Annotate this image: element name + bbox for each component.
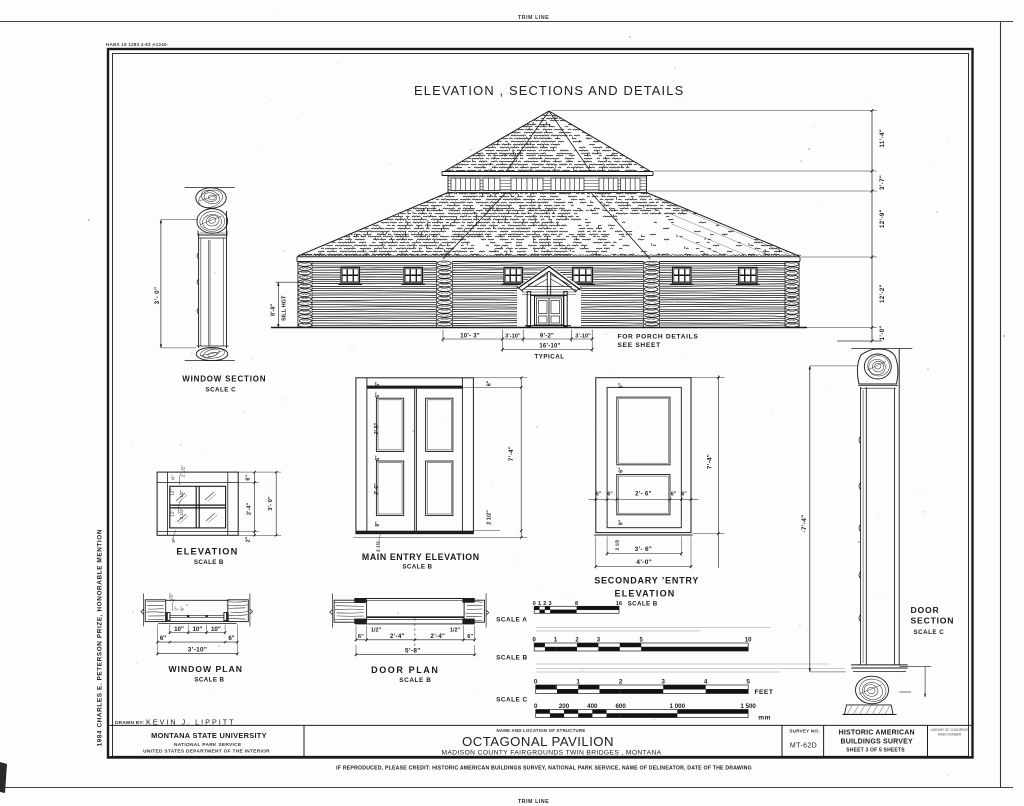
svg-text:6": 6" — [596, 492, 602, 498]
svg-text:FOR PORCH DETAILS: FOR PORCH DETAILS — [618, 334, 699, 341]
svg-text:3’-10": 3’-10" — [505, 334, 521, 340]
svg-text:SCALE B: SCALE B — [402, 564, 432, 571]
svg-text:1/2": 1/2" — [450, 628, 460, 634]
svg-text:11’-4": 11’-4" — [879, 129, 886, 148]
svg-text:TRIM LINE: TRIM LINE — [518, 15, 549, 21]
svg-text:6": 6" — [467, 634, 473, 640]
svg-text:16’-10": 16’-10" — [539, 344, 560, 350]
svg-text:4’-0": 4’-0" — [636, 559, 652, 566]
svg-text:LIBRARY OF CONGRESS: LIBRARY OF CONGRESS — [931, 728, 969, 732]
svg-text:MAIN ENTRY ELEVATION: MAIN ENTRY ELEVATION — [362, 552, 480, 562]
svg-text:6": 6" — [228, 635, 234, 642]
svg-text:8’-8": 8’-8" — [271, 303, 277, 316]
svg-text:-1/2": -1/2" — [179, 489, 184, 499]
svg-text:10": 10" — [174, 626, 184, 633]
svg-text:3’- 0": 3’- 0" — [154, 287, 161, 305]
svg-text:5: 5 — [746, 679, 750, 686]
svg-text:1 500: 1 500 — [740, 703, 756, 710]
svg-text:HABS NUMBER: HABS NUMBER — [938, 733, 962, 737]
svg-text:3’- 6": 3’- 6" — [635, 546, 653, 553]
svg-text:HISTORIC AMERICAN: HISTORIC AMERICAN — [839, 730, 915, 737]
svg-text:2: 2 — [543, 601, 546, 607]
svg-text:2 1/2": 2 1/2" — [487, 510, 493, 525]
svg-text:6": 6" — [619, 467, 625, 473]
svg-text:SURVEY NO.: SURVEY NO. — [789, 729, 819, 734]
svg-text:OCTAGONAL PAVILION: OCTAGONAL PAVILION — [462, 734, 614, 749]
svg-text:DRAWN BY:: DRAWN BY: — [115, 720, 144, 726]
svg-text:SHEET 3 OF 5 SHEETS: SHEET 3 OF 5 SHEETS — [846, 748, 905, 754]
svg-text:16: 16 — [616, 601, 622, 607]
svg-text:SCALE B: SCALE B — [399, 677, 431, 684]
svg-text:8": 8" — [375, 521, 381, 527]
svg-text:1: 1 — [538, 601, 541, 607]
svg-text:SECTION: SECTION — [911, 616, 955, 626]
svg-text:SCALE C: SCALE C — [914, 629, 945, 636]
svg-text:6": 6" — [671, 492, 677, 498]
svg-text:mm: mm — [758, 715, 771, 722]
svg-text:2’-4": 2’-4" — [430, 634, 445, 640]
svg-text:SEE SHEET: SEE SHEET — [618, 342, 661, 349]
svg-text:2’- 6": 2’- 6" — [635, 491, 652, 497]
svg-text:6": 6" — [375, 392, 381, 398]
svg-text:3’- 0": 3’- 0" — [268, 496, 274, 511]
svg-text:3: 3 — [549, 601, 552, 607]
svg-text:7’-4": 7’-4" — [707, 454, 714, 469]
svg-text:MONTANA STATE UNIVERSITY: MONTANA STATE UNIVERSITY — [151, 731, 267, 740]
svg-text:ELEVATION: ELEVATION — [615, 589, 676, 599]
svg-text:6": 6" — [180, 606, 185, 611]
svg-text:6": 6" — [171, 475, 177, 480]
svg-text:400: 400 — [587, 703, 598, 710]
svg-text:3’-7": 3’-7" — [879, 175, 886, 190]
svg-text:12": 12" — [170, 488, 176, 495]
svg-text:SCALE A: SCALE A — [496, 617, 527, 624]
svg-text:6": 6" — [160, 635, 166, 642]
svg-text:0: 0 — [534, 703, 538, 710]
svg-text:ELEVATION: ELEVATION — [176, 547, 238, 557]
svg-text:SCALE B: SCALE B — [496, 655, 528, 662]
svg-text:DOOR: DOOR — [911, 605, 940, 615]
svg-text:SCALE B: SCALE B — [628, 600, 658, 607]
svg-text:10": 10" — [211, 626, 221, 633]
svg-text:SECONDARY ’ENTRY: SECONDARY ’ENTRY — [594, 576, 699, 586]
svg-text:SCALE B: SCALE B — [194, 677, 224, 684]
svg-text:1: 1 — [576, 679, 580, 686]
svg-text:TYPICAL: TYPICAL — [535, 354, 565, 361]
svg-text:6": 6" — [246, 475, 252, 481]
svg-text:2 1/2": 2 1/2" — [179, 507, 184, 519]
svg-text:MT-62D: MT-62D — [790, 743, 817, 750]
svg-text:200: 200 — [559, 703, 570, 710]
svg-text:1 000: 1 000 — [670, 703, 686, 710]
svg-text:SCALE C: SCALE C — [496, 697, 528, 704]
svg-text:2 1/2: 2 1/2 — [376, 541, 382, 552]
svg-text:9’-2": 9’-2" — [540, 334, 554, 340]
svg-text:2 1/2: 2 1/2 — [615, 539, 621, 550]
svg-text:NAME AND LOCATION OF STRUCTURE: NAME AND LOCATION OF STRUCTURE — [497, 728, 586, 733]
svg-text:12’-9": 12’-9" — [879, 209, 886, 228]
svg-text:6": 6" — [487, 380, 493, 386]
svg-text:NATIONAL PARK SERVICE: NATIONAL PARK SERVICE — [174, 742, 242, 748]
svg-text:10’- 3": 10’- 3" — [460, 334, 480, 340]
svg-text:1’-0": 1’-0" — [879, 325, 886, 340]
svg-text:12": 12" — [170, 510, 176, 517]
svg-text:SCALE C: SCALE C — [205, 387, 236, 394]
svg-text:6": 6" — [375, 455, 381, 461]
svg-text:SCALE B: SCALE B — [194, 559, 224, 566]
svg-text:3: 3 — [661, 679, 665, 686]
svg-text:4: 4 — [704, 679, 708, 686]
svg-text:2: 2 — [619, 679, 623, 686]
svg-text:7’-4": 7’-4" — [508, 446, 515, 461]
svg-text:1/2": 1/2" — [371, 628, 381, 634]
svg-text:5’-8": 5’-8" — [405, 647, 421, 654]
svg-text:8: 8 — [575, 601, 578, 607]
svg-text:2’-4": 2’-4" — [390, 634, 405, 640]
svg-text:DOOR PLAN: DOOR PLAN — [371, 665, 439, 675]
svg-text:6": 6" — [619, 382, 625, 388]
svg-text:2’-4": 2’-4" — [247, 503, 253, 516]
svg-text:3’-10": 3’-10" — [188, 647, 207, 654]
svg-text:2 1/2": 2 1/2" — [181, 465, 186, 477]
svg-text:9": 9" — [619, 519, 625, 525]
svg-text:2": 2" — [174, 606, 179, 611]
svg-text:IF REPRODUCED, PLEASE CREDIT:: IF REPRODUCED, PLEASE CREDIT: HISTORIC A… — [336, 766, 752, 772]
svg-text:UNITED STATES DEPARTMENT OF TH: UNITED STATES DEPARTMENT OF THE INTERIOR — [143, 749, 270, 755]
svg-text:WINDOW PLAN: WINDOW PLAN — [168, 664, 243, 674]
svg-text:FEET: FEET — [755, 689, 774, 696]
svg-text:1984 CHARLES E. PETERSON PRIZE: 1984 CHARLES E. PETERSON PRIZE, HONORABL… — [97, 529, 104, 747]
svg-text:3’-10": 3’-10" — [575, 334, 591, 340]
svg-text:12’-2": 12’-2" — [879, 284, 886, 303]
svg-text:1/2": 1/2" — [169, 593, 175, 602]
svg-text:0: 0 — [534, 679, 538, 686]
svg-text:2’-6": 2’-6" — [374, 422, 380, 434]
svg-text:6": 6" — [607, 492, 613, 498]
svg-text:BUILDINGS SURVEY: BUILDINGS SURVEY — [841, 739, 913, 746]
svg-text:MADISON COUNTY FAIRGROUNDS: MADISON COUNTY FAIRGROUNDS TWIN BRIDGES … — [442, 750, 662, 757]
svg-text:ELEVATION , SECTIONS AND DETAI: ELEVATION , SECTIONS AND DETAILS — [414, 83, 684, 98]
svg-text:6": 6" — [375, 381, 381, 387]
svg-text:SILL HGT: SILL HGT — [282, 295, 288, 321]
svg-text:WINDOW SECTION: WINDOW SECTION — [182, 375, 266, 384]
svg-text:10: 10 — [745, 638, 752, 644]
svg-text:2": 2" — [246, 536, 252, 542]
svg-text:600: 600 — [615, 703, 626, 710]
svg-text:0: 0 — [533, 601, 536, 607]
svg-text:10": 10" — [192, 626, 202, 633]
svg-text:6": 6" — [358, 634, 364, 640]
svg-text:TRIM LINE: TRIM LINE — [518, 799, 549, 805]
svg-text:6": 6" — [681, 492, 687, 498]
svg-text:HABS 19 1283 4-63 A1240-: HABS 19 1283 4-63 A1240- — [106, 42, 169, 47]
svg-text:-7’-4": -7’-4" — [801, 515, 808, 533]
svg-text:2’-6": 2’-6" — [374, 483, 380, 495]
